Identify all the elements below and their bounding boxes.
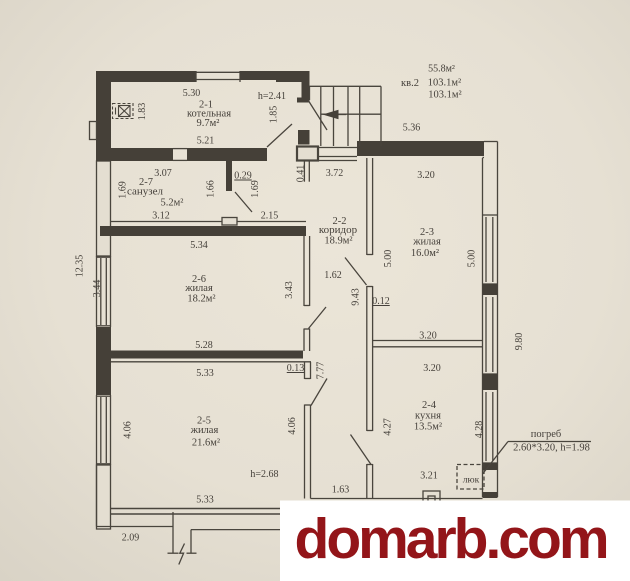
svg-text:3.44: 3.44 xyxy=(92,280,103,298)
svg-text:санузел: санузел xyxy=(127,186,164,198)
svg-text:9.80: 9.80 xyxy=(514,333,525,351)
svg-text:1.83: 1.83 xyxy=(137,103,148,121)
svg-text:21.6м²: 21.6м² xyxy=(192,438,220,449)
svg-text:9.43: 9.43 xyxy=(351,288,362,306)
svg-text:2.60*3.20, h=1.98: 2.60*3.20, h=1.98 xyxy=(513,443,590,454)
svg-text:жилая: жилая xyxy=(184,283,213,294)
svg-text:4.06: 4.06 xyxy=(123,421,134,439)
svg-text:3.21: 3.21 xyxy=(420,471,438,482)
svg-text:жилая: жилая xyxy=(190,425,219,436)
svg-text:2.09: 2.09 xyxy=(122,533,140,544)
svg-text:0.12: 0.12 xyxy=(372,296,390,307)
svg-text:0.13: 0.13 xyxy=(287,363,305,374)
svg-text:5.2м²: 5.2м² xyxy=(161,198,184,209)
svg-text:5.36: 5.36 xyxy=(403,123,421,134)
svg-text:5.21: 5.21 xyxy=(197,136,215,147)
svg-text:3.20: 3.20 xyxy=(423,363,441,374)
svg-text:1.66: 1.66 xyxy=(206,180,217,198)
svg-text:2.15: 2.15 xyxy=(261,211,279,222)
svg-text:55.8м²: 55.8м² xyxy=(428,64,455,75)
svg-text:3.43: 3.43 xyxy=(284,281,295,299)
svg-text:domarb.com: domarb.com xyxy=(295,507,610,571)
svg-text:13.5м²: 13.5м² xyxy=(414,422,442,433)
svg-text:103.1м²: 103.1м² xyxy=(428,78,461,89)
svg-text:жилая: жилая xyxy=(412,237,441,248)
svg-text:9.7м²: 9.7м² xyxy=(197,118,220,129)
svg-text:18.9м²: 18.9м² xyxy=(324,236,352,247)
svg-text:1.69: 1.69 xyxy=(118,181,129,199)
svg-text:4.27: 4.27 xyxy=(383,418,394,436)
svg-text:5.28: 5.28 xyxy=(195,340,213,351)
svg-text:люк: люк xyxy=(463,476,480,486)
svg-text:7.77: 7.77 xyxy=(315,362,326,380)
svg-text:1.63: 1.63 xyxy=(332,485,350,496)
svg-text:5.33: 5.33 xyxy=(196,368,214,379)
svg-text:1.85: 1.85 xyxy=(269,106,280,124)
svg-text:1.69: 1.69 xyxy=(250,180,261,198)
svg-text:0.29: 0.29 xyxy=(234,171,252,182)
svg-text:кухня: кухня xyxy=(415,411,441,422)
svg-text:h=2.41: h=2.41 xyxy=(258,91,286,102)
svg-text:5.34: 5.34 xyxy=(190,240,208,251)
svg-text:погреб: погреб xyxy=(531,429,561,440)
svg-text:5.30: 5.30 xyxy=(183,88,201,99)
svg-text:3.12: 3.12 xyxy=(152,211,170,222)
svg-text:1.62: 1.62 xyxy=(324,270,342,281)
svg-text:0.41: 0.41 xyxy=(295,165,306,183)
svg-text:16.0м²: 16.0м² xyxy=(411,248,439,259)
svg-text:3.72: 3.72 xyxy=(326,168,344,179)
svg-text:12.35: 12.35 xyxy=(75,255,86,278)
svg-text:4.28: 4.28 xyxy=(474,421,485,439)
svg-text:3.20: 3.20 xyxy=(419,331,437,342)
svg-text:h=2.68: h=2.68 xyxy=(250,469,278,480)
svg-text:103.1м²: 103.1м² xyxy=(428,90,461,101)
svg-text:5.33: 5.33 xyxy=(196,495,214,506)
svg-text:5.00: 5.00 xyxy=(383,250,394,268)
svg-text:коридор: коридор xyxy=(319,224,358,236)
svg-text:4.06: 4.06 xyxy=(287,417,298,435)
svg-text:18.2м²: 18.2м² xyxy=(187,294,215,305)
svg-text:5.00: 5.00 xyxy=(466,250,477,268)
svg-text:3.07: 3.07 xyxy=(154,168,172,179)
svg-text:кв.2: кв.2 xyxy=(401,78,419,89)
svg-text:3.20: 3.20 xyxy=(417,170,435,181)
svg-text:2-4: 2-4 xyxy=(422,400,437,411)
